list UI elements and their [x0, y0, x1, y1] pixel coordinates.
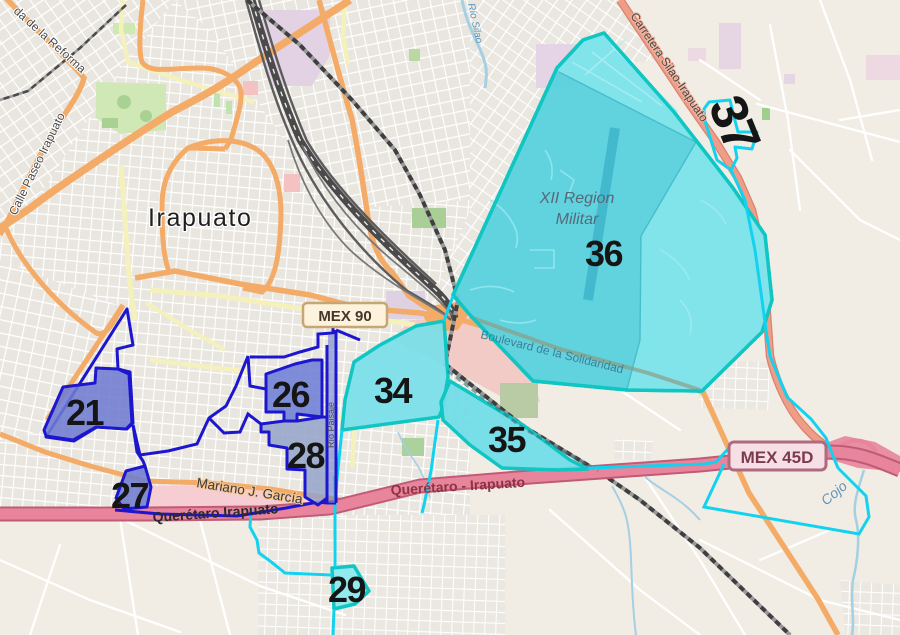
svg-text:XII Region: XII Region	[539, 190, 615, 207]
svg-text:21: 21	[66, 392, 105, 433]
svg-text:27: 27	[111, 475, 149, 516]
svg-text:36: 36	[585, 233, 623, 274]
svg-text:29: 29	[328, 569, 366, 610]
svg-text:MEX 45D: MEX 45D	[741, 448, 814, 467]
svg-text:Río Paisaje: Río Paisaje	[326, 402, 336, 448]
svg-text:26: 26	[272, 374, 310, 415]
svg-text:34: 34	[374, 370, 413, 411]
svg-text:35: 35	[488, 419, 527, 460]
svg-text:MEX 90: MEX 90	[318, 308, 371, 325]
svg-text:28: 28	[287, 435, 325, 476]
svg-text:Irapuato: Irapuato	[148, 204, 253, 232]
svg-text:Militar: Militar	[556, 211, 599, 228]
